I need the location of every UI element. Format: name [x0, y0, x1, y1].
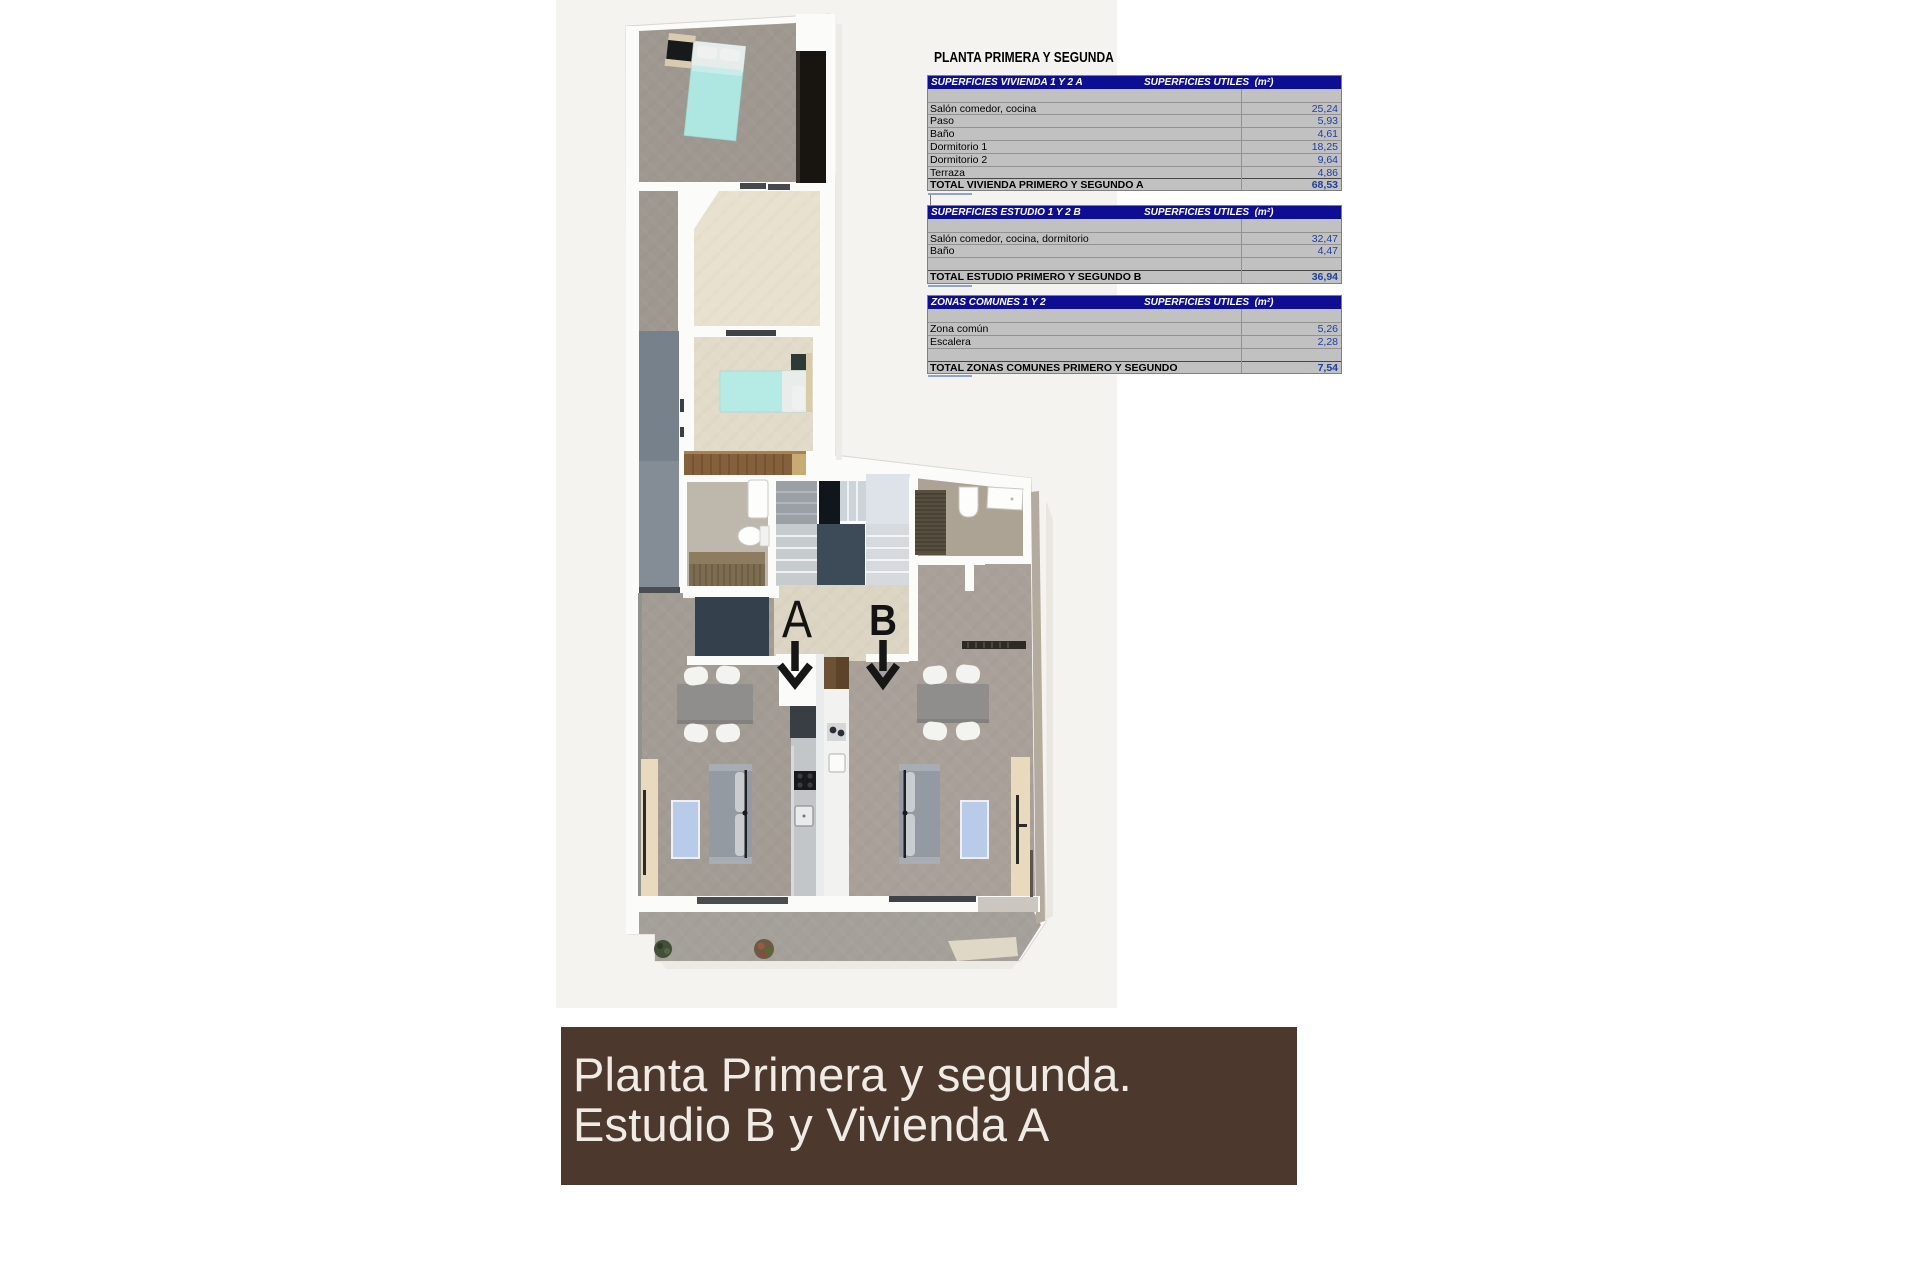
svg-text:B: B — [869, 596, 897, 645]
svg-text:A: A — [782, 590, 813, 649]
